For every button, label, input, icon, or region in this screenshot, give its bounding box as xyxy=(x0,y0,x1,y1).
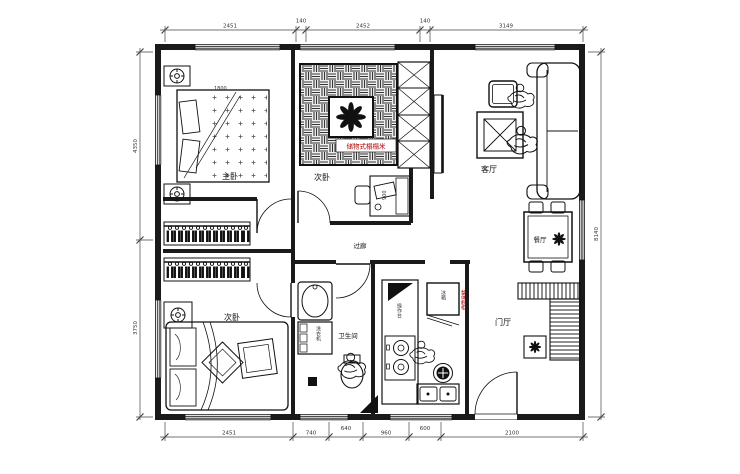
window-top-3 xyxy=(475,44,555,50)
flower-icon xyxy=(336,102,366,132)
window-right-1 xyxy=(579,200,585,260)
dim-bottom-6: 2100 xyxy=(505,431,519,437)
window-left-1 xyxy=(155,95,161,165)
dim-top-5: 3149 xyxy=(499,24,513,30)
cabinet-note-label: 整体橱柜 xyxy=(460,289,466,311)
dim-left-1: 4350 xyxy=(133,139,139,153)
room-label-bathroom: 卫生间 xyxy=(338,331,358,340)
shoe-cabinet xyxy=(550,299,580,360)
washer-label: 洗衣机 xyxy=(315,325,321,342)
room-label-bedroom-bottom: 次卧 xyxy=(224,312,240,322)
dim-right-1: 8140 xyxy=(594,227,600,241)
room-label-living: 客厅 xyxy=(481,164,497,174)
plant-icon xyxy=(552,232,566,246)
window-left-2 xyxy=(155,300,161,378)
counter-label: 操作台 xyxy=(396,302,402,319)
fridge-label: 冰箱 xyxy=(440,289,446,301)
room-label-dining: 餐厅 xyxy=(534,235,548,244)
desk-dim-label: 900 xyxy=(382,190,388,200)
dim-left-2: 3750 xyxy=(133,321,139,335)
window-top-1 xyxy=(195,44,280,50)
dim-bottom-5: 600 xyxy=(420,426,431,432)
dim-bottom-2: 740 xyxy=(306,431,317,437)
floor-drain xyxy=(308,377,317,386)
tatami-area: 储物式榻榻米 xyxy=(300,64,397,165)
room-label-master: 主卧 xyxy=(222,171,238,181)
shoe-cabinet xyxy=(518,283,580,299)
room-label-bedroom-top: 次卧 xyxy=(314,172,330,182)
window-bottom-1 xyxy=(185,414,271,420)
floor-plan-canvas: 储物式榻榻米 xyxy=(0,0,740,474)
dim-top-1: 2451 xyxy=(223,24,237,30)
dim-bottom-4: 960 xyxy=(381,431,392,437)
bed-dim-label: 1800 xyxy=(214,86,227,92)
room-label-corridor: 过廊 xyxy=(354,241,368,250)
plant-icon xyxy=(529,341,541,353)
dim-bottom-1: 2451 xyxy=(222,431,236,437)
dim-top-2: 140 xyxy=(296,19,307,25)
window-top-2 xyxy=(300,44,395,50)
window-bottom-3 xyxy=(390,414,452,420)
dim-bottom-3: 640 xyxy=(341,426,352,432)
window-bottom-2 xyxy=(300,414,348,420)
room-label-foyer: 门厅 xyxy=(495,317,511,327)
floor-plan: 储物式榻榻米 xyxy=(0,0,740,474)
dim-top-4: 140 xyxy=(420,19,431,25)
dim-top-3: 2452 xyxy=(356,24,370,30)
tatami-label: 储物式榻榻米 xyxy=(347,142,387,151)
